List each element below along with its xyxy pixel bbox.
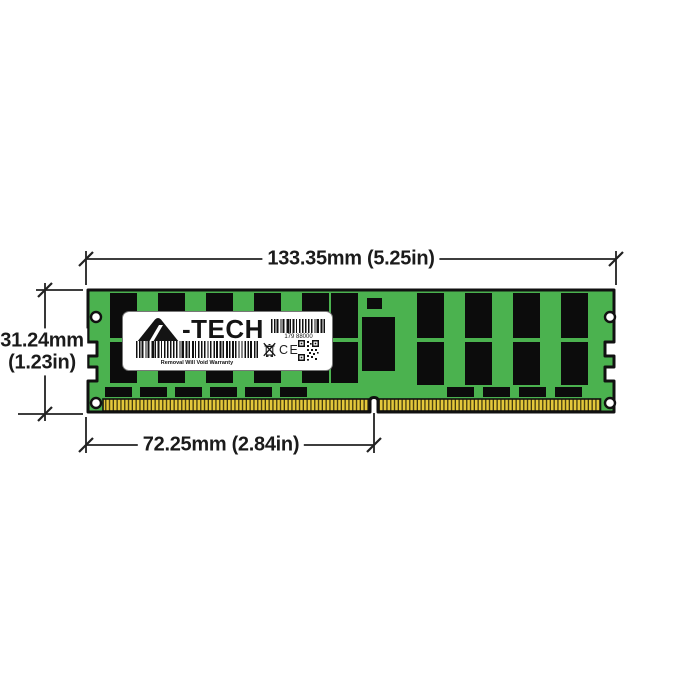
buffer-chip — [245, 387, 272, 397]
memory-chip — [561, 342, 588, 385]
mount-hole — [605, 312, 615, 322]
mount-hole — [91, 398, 101, 408]
register-chip — [362, 317, 395, 371]
ce-mark: CE — [279, 344, 299, 356]
pin-row-left — [103, 399, 369, 411]
buffer-chip — [280, 387, 307, 397]
buffer-chip — [210, 387, 237, 397]
height-dimension-mm: 31.24mm — [0, 330, 84, 352]
buffer-chip — [555, 387, 582, 397]
memory-chip — [561, 293, 588, 338]
spd-chip — [367, 298, 382, 309]
warranty-text: Removal Will Void Warranty — [136, 360, 258, 366]
barcode-icon — [271, 319, 326, 333]
buffer-chip — [519, 387, 546, 397]
height-dimension-in: (1.23in) — [0, 352, 84, 374]
module-illustration — [0, 0, 700, 700]
barcode-icon — [136, 341, 258, 358]
weee-bin-icon — [263, 342, 276, 357]
pin-width-dimension-label: 72.25mm (2.84in) — [138, 434, 304, 457]
width-dimension-label: 133.35mm (5.25in) — [262, 248, 439, 271]
memory-chip — [465, 342, 492, 385]
mount-hole — [605, 398, 615, 408]
buffer-chip — [447, 387, 474, 397]
buffer-chip — [140, 387, 167, 397]
buffer-chip — [105, 387, 132, 397]
qr-code-icon — [298, 340, 319, 361]
a-tech-logo-icon — [135, 318, 181, 342]
mount-hole — [91, 312, 101, 322]
height-dimension-label: 31.24mm (1.23in) — [0, 328, 87, 375]
buffer-chip — [175, 387, 202, 397]
memory-chip — [331, 342, 358, 383]
memory-chip — [513, 342, 540, 385]
pin-row-right — [379, 399, 601, 411]
barcode-number: 179 88000 — [271, 334, 326, 340]
memory-chip — [465, 293, 492, 338]
memory-chip — [331, 293, 358, 338]
memory-chip — [417, 342, 444, 385]
brand-text: -TECH — [182, 316, 264, 342]
memory-chip — [513, 293, 540, 338]
diagram-canvas: -TECH 179 88000 Removal Will Void Warran… — [0, 0, 700, 700]
product-label: -TECH 179 88000 Removal Will Void Warran… — [122, 311, 333, 371]
buffer-chip — [483, 387, 510, 397]
memory-chip — [417, 293, 444, 338]
